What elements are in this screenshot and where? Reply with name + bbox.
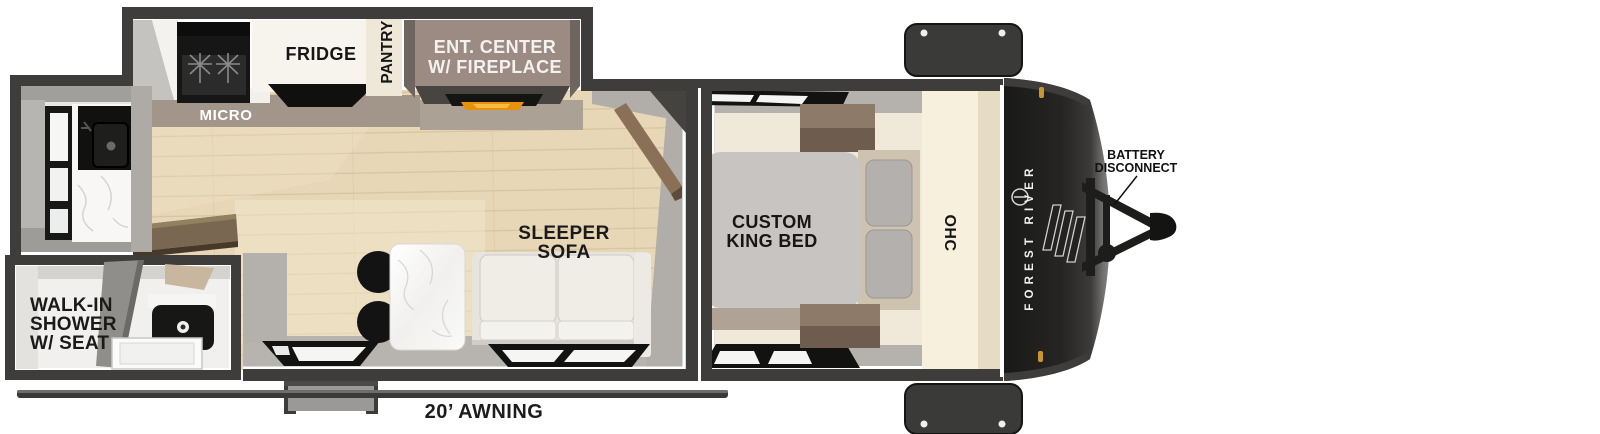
svg-text:OHC: OHC	[941, 214, 958, 251]
svg-text:KING BED: KING BED	[726, 231, 817, 251]
svg-text:BATTERY: BATTERY	[1107, 148, 1165, 162]
svg-text:W/ SEAT: W/ SEAT	[30, 333, 109, 354]
svg-text:FOREST RIVER: FOREST RIVER	[1024, 163, 1036, 310]
svg-text:FRIDGE: FRIDGE	[285, 44, 356, 64]
svg-text:ENT. CENTER: ENT. CENTER	[434, 37, 556, 57]
svg-text:20’ AWNING: 20’ AWNING	[425, 401, 544, 423]
svg-text:DISCONNECT: DISCONNECT	[1095, 161, 1178, 175]
svg-text:W/ FIREPLACE: W/ FIREPLACE	[428, 57, 562, 77]
svg-text:CUSTOM: CUSTOM	[732, 212, 812, 232]
svg-text:SHOWER: SHOWER	[30, 314, 117, 335]
svg-text:SOFA: SOFA	[537, 242, 590, 263]
svg-text:SLEEPER: SLEEPER	[518, 223, 610, 244]
svg-text:PANTRY: PANTRY	[379, 20, 396, 84]
svg-text:WALK-IN: WALK-IN	[30, 295, 113, 316]
svg-text:MICRO: MICRO	[200, 107, 253, 124]
